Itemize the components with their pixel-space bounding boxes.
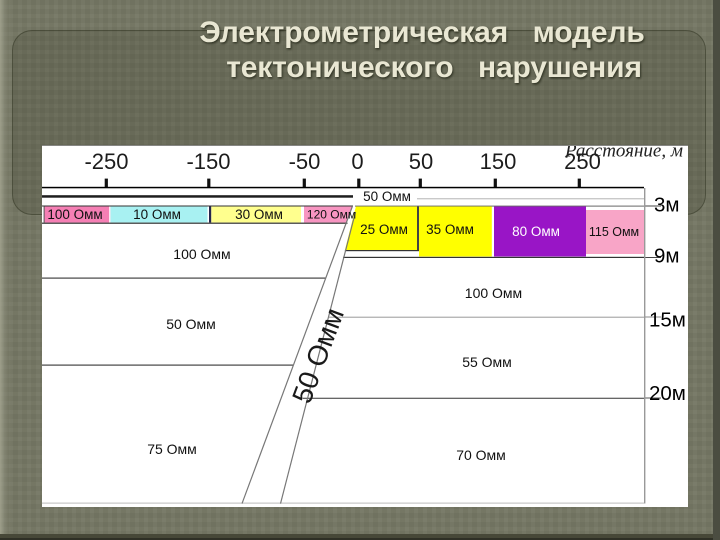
- svg-text:-50: -50: [289, 149, 321, 174]
- svg-text:80 Омм: 80 Омм: [512, 224, 560, 239]
- svg-text:70 Омм: 70 Омм: [456, 447, 506, 463]
- svg-text:50 Омм: 50 Омм: [286, 304, 350, 408]
- svg-text:10 Омм: 10 Омм: [133, 207, 181, 222]
- svg-text:3м: 3м: [654, 194, 680, 217]
- svg-text:35 Омм: 35 Омм: [426, 222, 474, 237]
- svg-text:150: 150: [480, 149, 517, 174]
- svg-text:55 Омм: 55 Омм: [462, 354, 512, 370]
- svg-text:50 Омм: 50 Омм: [363, 189, 411, 204]
- svg-text:9м: 9м: [654, 245, 680, 268]
- svg-text:0: 0: [351, 149, 363, 174]
- svg-text:100 Омм: 100 Омм: [173, 246, 230, 262]
- svg-text:50: 50: [409, 149, 433, 174]
- svg-text:-250: -250: [84, 149, 128, 174]
- svg-text:50 Омм: 50 Омм: [166, 316, 216, 332]
- svg-text:-150: -150: [186, 149, 230, 174]
- svg-text:115 Омм: 115 Омм: [589, 225, 639, 239]
- svg-text:75 Омм: 75 Омм: [147, 441, 197, 457]
- svg-text:25 Омм: 25 Омм: [360, 222, 408, 237]
- svg-text:120 Омм: 120 Омм: [307, 208, 356, 222]
- svg-text:Расстояние, м: Расстояние, м: [564, 146, 683, 162]
- svg-text:30 Омм: 30 Омм: [235, 207, 283, 222]
- svg-text:15м: 15м: [649, 309, 686, 332]
- svg-text:100 Омм: 100 Омм: [465, 285, 522, 301]
- svg-text:20м: 20м: [649, 382, 686, 405]
- svg-text:100 Омм: 100 Омм: [47, 207, 102, 222]
